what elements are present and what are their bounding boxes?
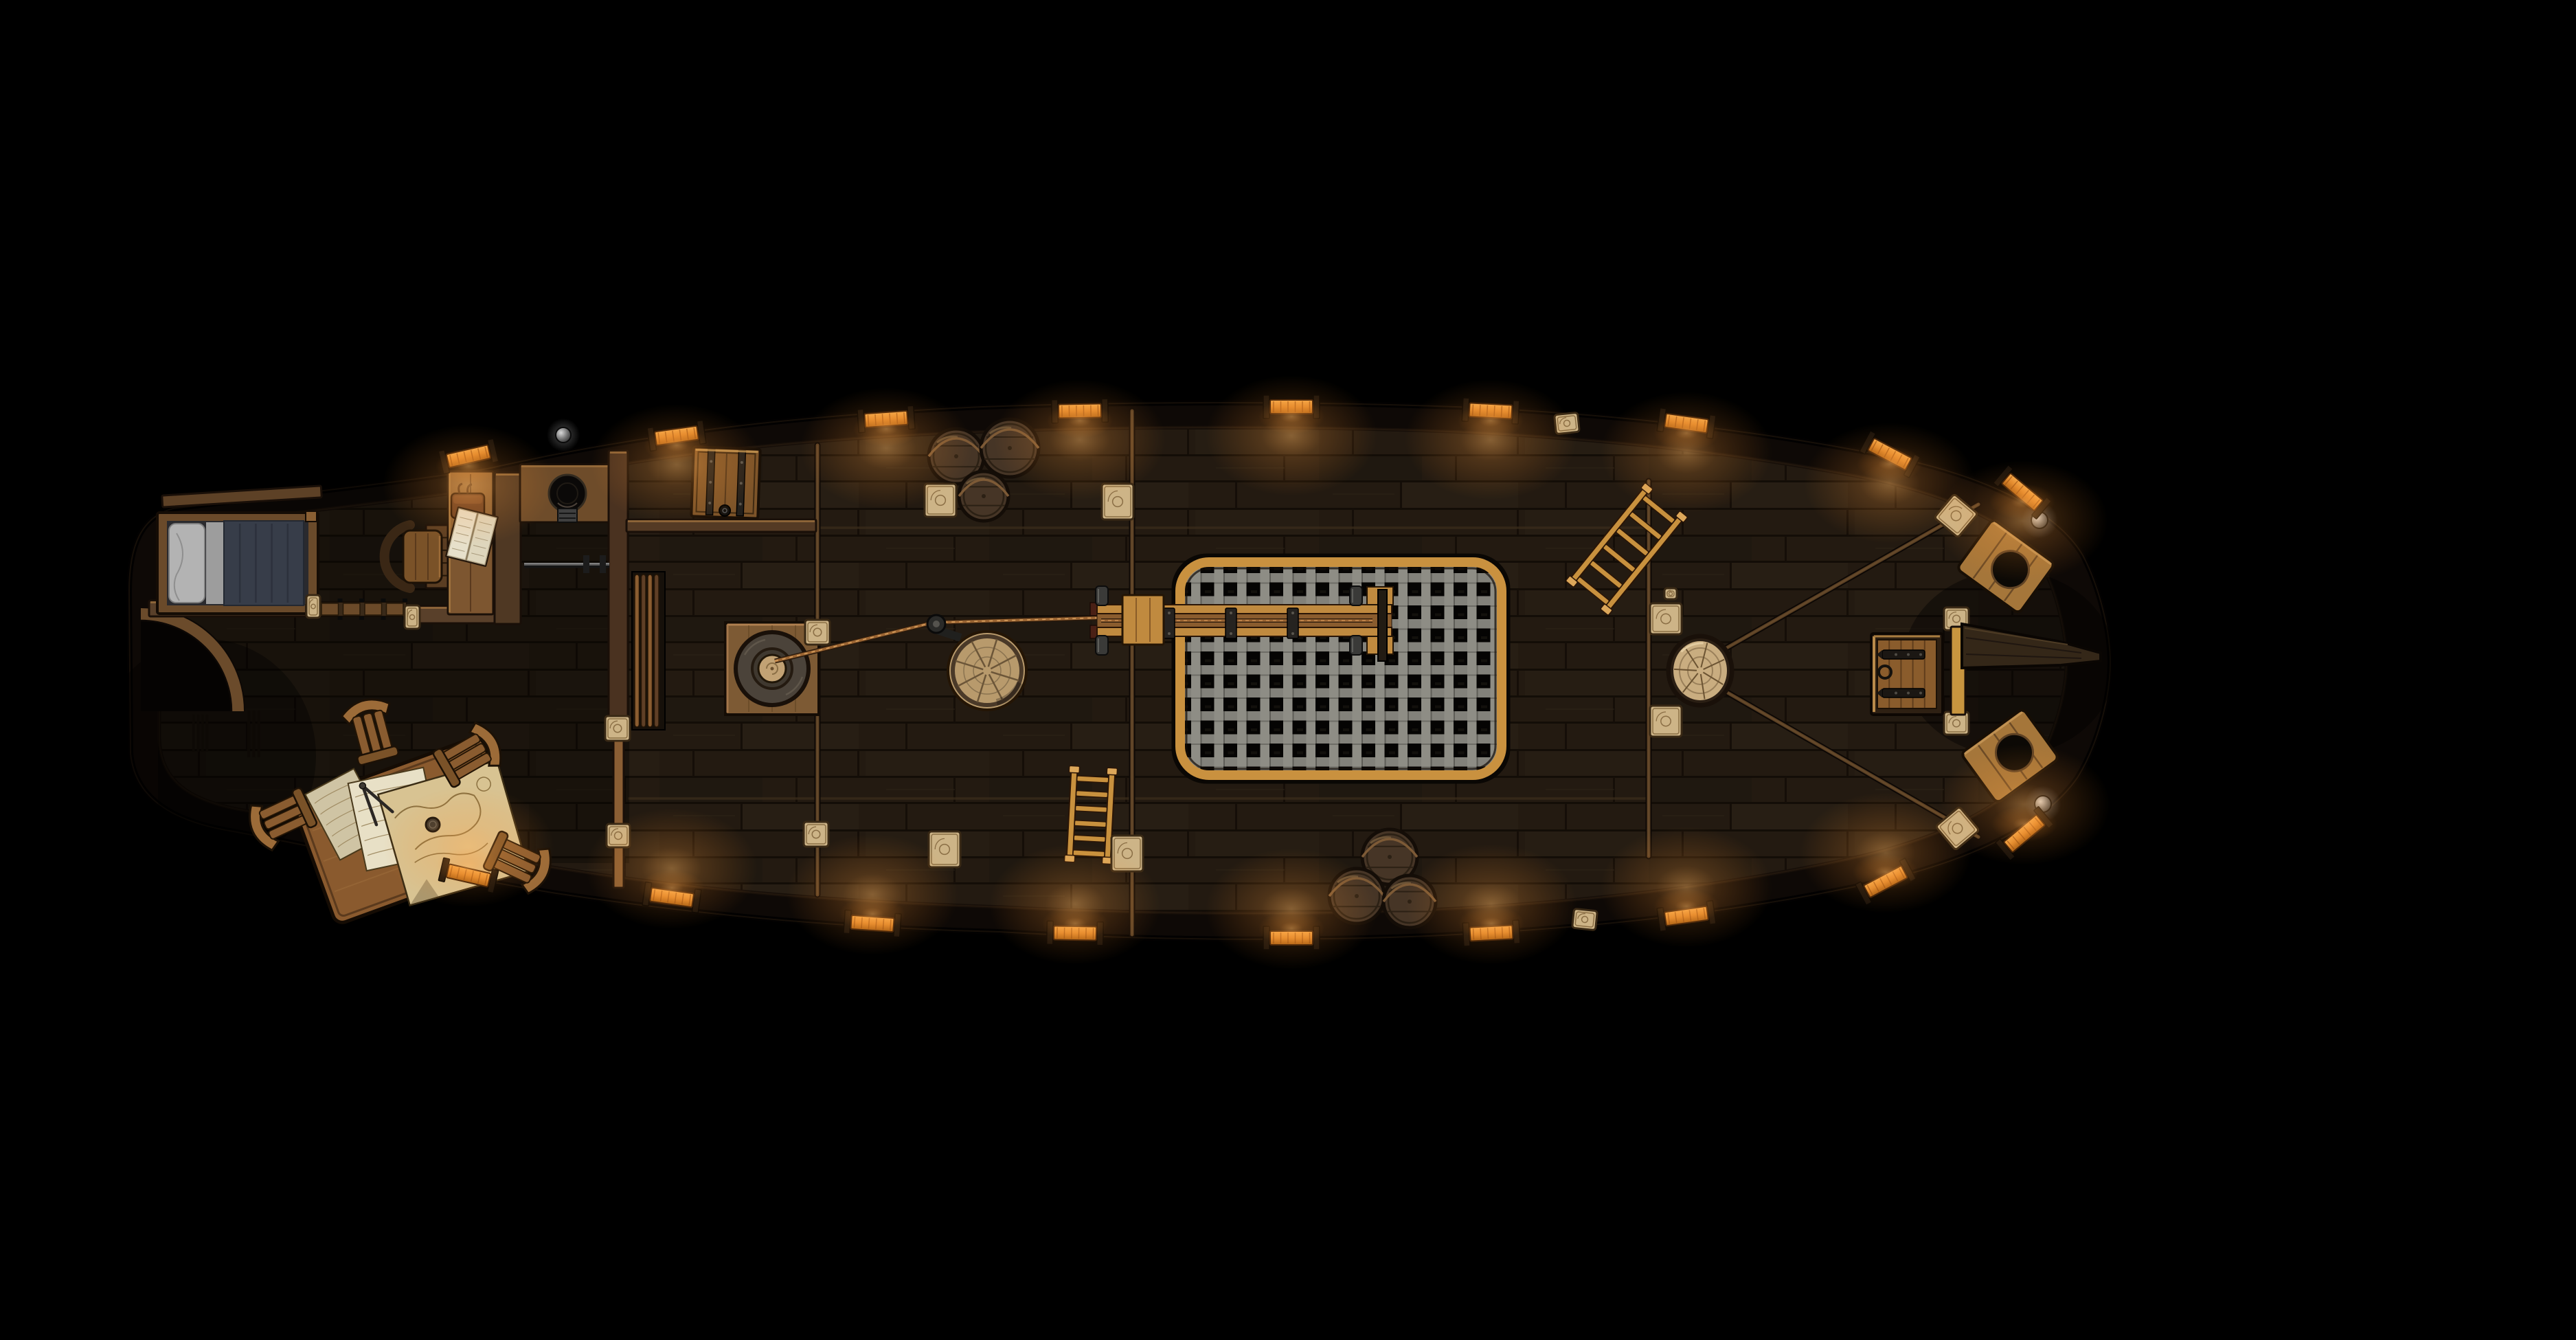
forecastle-hatch[interactable] [1871,634,1943,715]
carved-wall-block [306,595,320,618]
stern-vent-grate-2 [247,711,260,757]
cargo-grate[interactable] [1174,556,1508,781]
mast-block [1650,603,1682,634]
rope-spool[interactable] [948,632,1026,710]
ship-map-canvas[interactable] [0,0,2576,1340]
small-cleat [1664,588,1677,599]
captain-bed[interactable] [157,511,318,615]
rail-lamp-ball-aft [547,418,580,451]
carved-wall-block [405,605,420,629]
wall-bench[interactable] [632,572,665,730]
deadeye-block [804,822,828,847]
foremast-stump [1669,636,1732,705]
sliding-door-rail[interactable] [320,599,407,620]
deadeye-block [605,716,630,741]
mast-block [1650,706,1682,737]
deadeye-block [805,620,830,645]
